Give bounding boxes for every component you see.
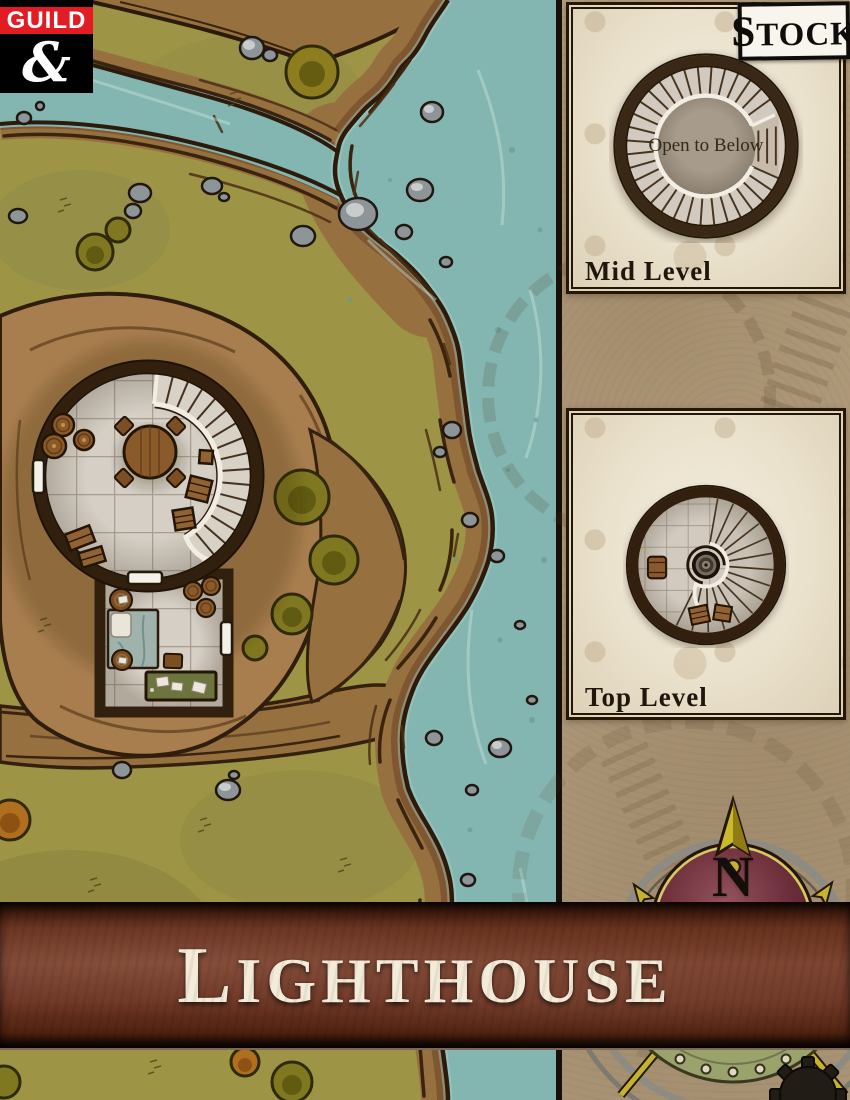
table-and-chairs <box>114 416 186 488</box>
mini-barrel <box>648 557 666 579</box>
title-banner: Lighthouse <box>0 902 850 1050</box>
top-level-floorplan <box>623 482 789 648</box>
compass-gear-icon <box>562 1047 850 1100</box>
open-to-below-label: Open to Below <box>646 135 766 157</box>
map-product-cover: N <box>0 0 850 1100</box>
logo-guild-label: GUILD <box>7 9 87 33</box>
panel-top-level: Top Level <box>566 408 846 720</box>
dnd-ampersand-icon: & <box>0 34 93 93</box>
compass-north-label: N <box>698 843 768 910</box>
stock-badge: Stock <box>738 1 850 61</box>
top-level-label: Top Level <box>585 682 708 713</box>
page-title: Lighthouse <box>177 935 672 1016</box>
dmsguild-logo: GUILD & <box>0 0 93 93</box>
stock-badge-label: Stock <box>731 9 850 54</box>
mid-level-label: Mid Level <box>585 256 712 287</box>
